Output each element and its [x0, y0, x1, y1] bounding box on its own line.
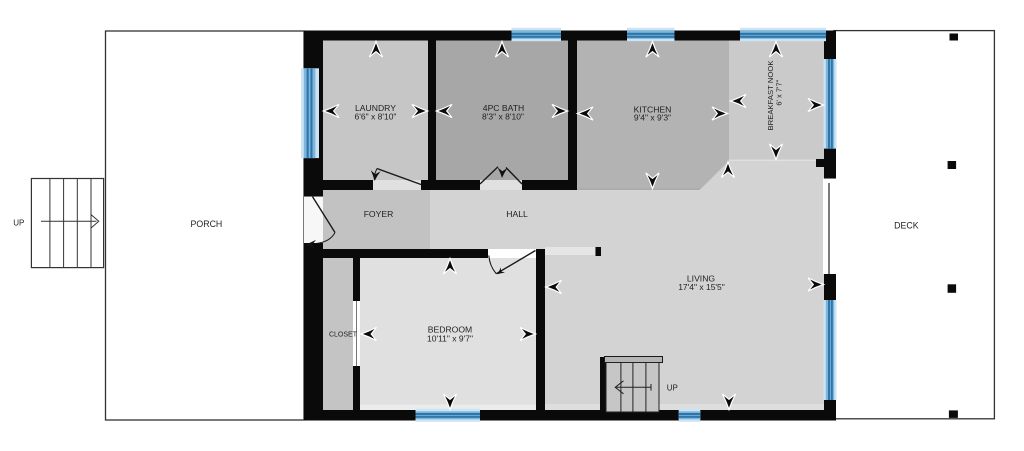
svg-text:UP: UP: [13, 218, 24, 227]
svg-text:17'4" x 15'5": 17'4" x 15'5": [678, 282, 725, 292]
svg-text:UP: UP: [667, 384, 678, 393]
svg-text:FOYER: FOYER: [364, 209, 394, 219]
svg-text:HALL: HALL: [506, 209, 528, 219]
svg-text:6'6" x 8'10": 6'6" x 8'10": [355, 111, 397, 121]
svg-text:8'3" x 8'10": 8'3" x 8'10": [482, 111, 524, 121]
svg-text:6' x 7'7": 6' x 7'7": [775, 79, 784, 105]
svg-text:BREAKFAST NOOK: BREAKFAST NOOK: [766, 60, 775, 131]
svg-text:9'4" x 9'3": 9'4" x 9'3": [634, 113, 671, 123]
svg-text:CLOSET: CLOSET: [329, 331, 358, 338]
svg-text:DECK: DECK: [894, 220, 919, 230]
svg-text:10'11" x 9'7": 10'11" x 9'7": [427, 333, 473, 343]
svg-text:PORCH: PORCH: [191, 219, 223, 229]
